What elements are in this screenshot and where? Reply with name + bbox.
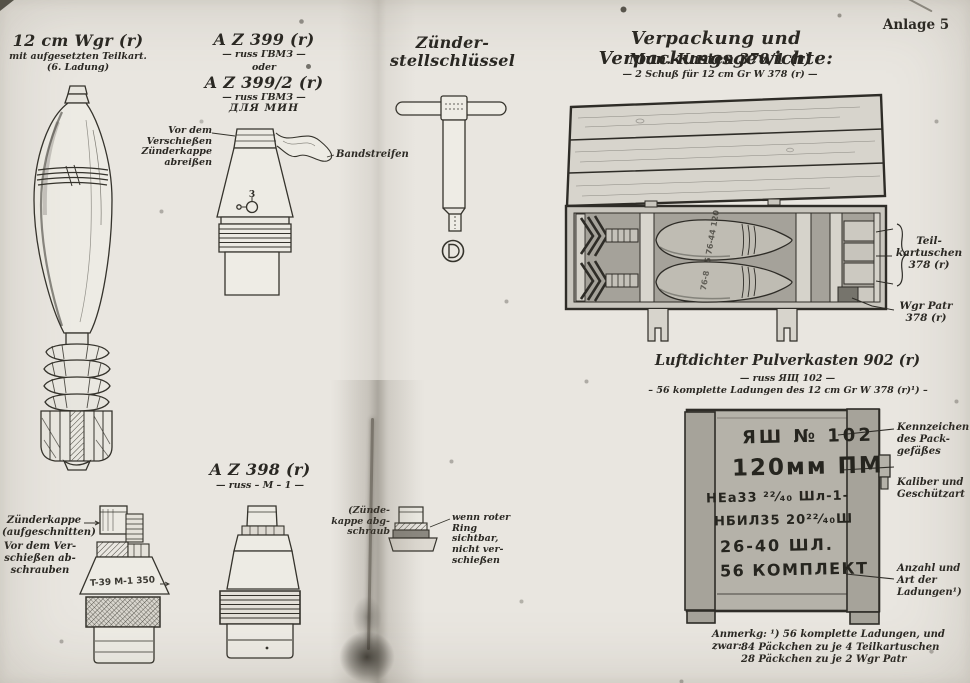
- kaliber-label: Kaliber und Geschützart: [897, 477, 969, 501]
- cap-removed-drawing: [389, 507, 450, 551]
- az399-russ1: — russ ГВМЗ —: [204, 50, 324, 61]
- az399-2-title: A Z 399/2 (r): [200, 74, 328, 92]
- az399-drawing: [212, 129, 334, 295]
- munkasten-drawing: [566, 95, 906, 341]
- munkasten-title: Mun.-Kasten 378/1 (r): [610, 52, 830, 68]
- stencil-120mm-pm: 120мм ПМ: [732, 452, 884, 481]
- pulverkasten-title: Luftdichter Pulverkasten 902 (r): [640, 353, 935, 369]
- az398-russ: — russ – M – 1 —: [202, 481, 318, 492]
- pulverkasten-russ: — russ ЯЩ 102 —: [640, 374, 935, 385]
- zuenderkappe-label: Zünderkappe (aufgeschnitten): [2, 515, 86, 539]
- az398-drawing: [220, 506, 300, 658]
- stencil-56-komplekt: 56 КОМПЛЕКТ: [720, 558, 869, 580]
- az399-title: A Z 399 (r): [204, 31, 324, 49]
- anzahl-label: Anzahl und Art der Ladungen¹): [897, 563, 969, 598]
- az399-russ-dlja-min: ДЛЯ МИН: [204, 103, 324, 115]
- az399-dial-number: 3: [246, 190, 258, 200]
- stellschluessel-drawing: [396, 96, 506, 262]
- kennzeichen-label: Kennzeichen des Pack- gefäßes: [897, 422, 969, 457]
- pulverkasten-subtitle: – 56 komplette Ladungen des 12 cm Gr W 3…: [628, 386, 948, 397]
- wgr-title: 12 cm Wgr (r): [0, 32, 156, 50]
- stencil-26-40: 26-40 ШЛ.: [720, 535, 834, 556]
- footnote-line3: 28 Päckchen zu je 2 Wgr Patr: [741, 654, 961, 666]
- abschrauben-note: Vor dem Ver- schießen ab- schrauben: [2, 541, 78, 576]
- stencil-nea33: НЕа33 ²²⁄₄₀ Шл-1-: [706, 489, 849, 507]
- teilkartuschen-label: Teil- kartuschen 378 (r): [894, 236, 964, 272]
- bandstreifen-label: Bandstreifen: [336, 149, 406, 161]
- kappe-abgeschraubt-note: (Zünde- kappe abg- schraub: [326, 506, 390, 538]
- key-title: Zünder- stellschlüssel: [380, 34, 525, 70]
- stencil-nbil35: НБИЛ35 20²²⁄₄₀Ш: [714, 512, 853, 530]
- az398-title: A Z 398 (r): [202, 461, 318, 479]
- wgr-shell-drawing: [34, 86, 112, 470]
- footnote-line2: 84 Päckchen zu je 4 Teilkartuschen: [741, 642, 961, 654]
- roter-ring-note: wenn roter Ring sichtbar, nicht ver- sch…: [452, 513, 524, 566]
- az399-cap-note: Vor dem Verschießen Zünderkappe abreißen: [138, 126, 212, 169]
- wgr-patr-label: Wgr Patr 378 (r): [894, 301, 958, 325]
- munkasten-subtitle: — 2 Schuß für 12 cm Gr W 378 (r) —: [610, 70, 830, 81]
- stencil-yash-102: ЯШ № 102: [742, 425, 874, 449]
- scanned-manual-page: Anlage 5 12 cm Wgr (r) mit aufgesetzten …: [0, 0, 970, 683]
- wgr-subtitle2: (6. Ladung): [0, 63, 156, 74]
